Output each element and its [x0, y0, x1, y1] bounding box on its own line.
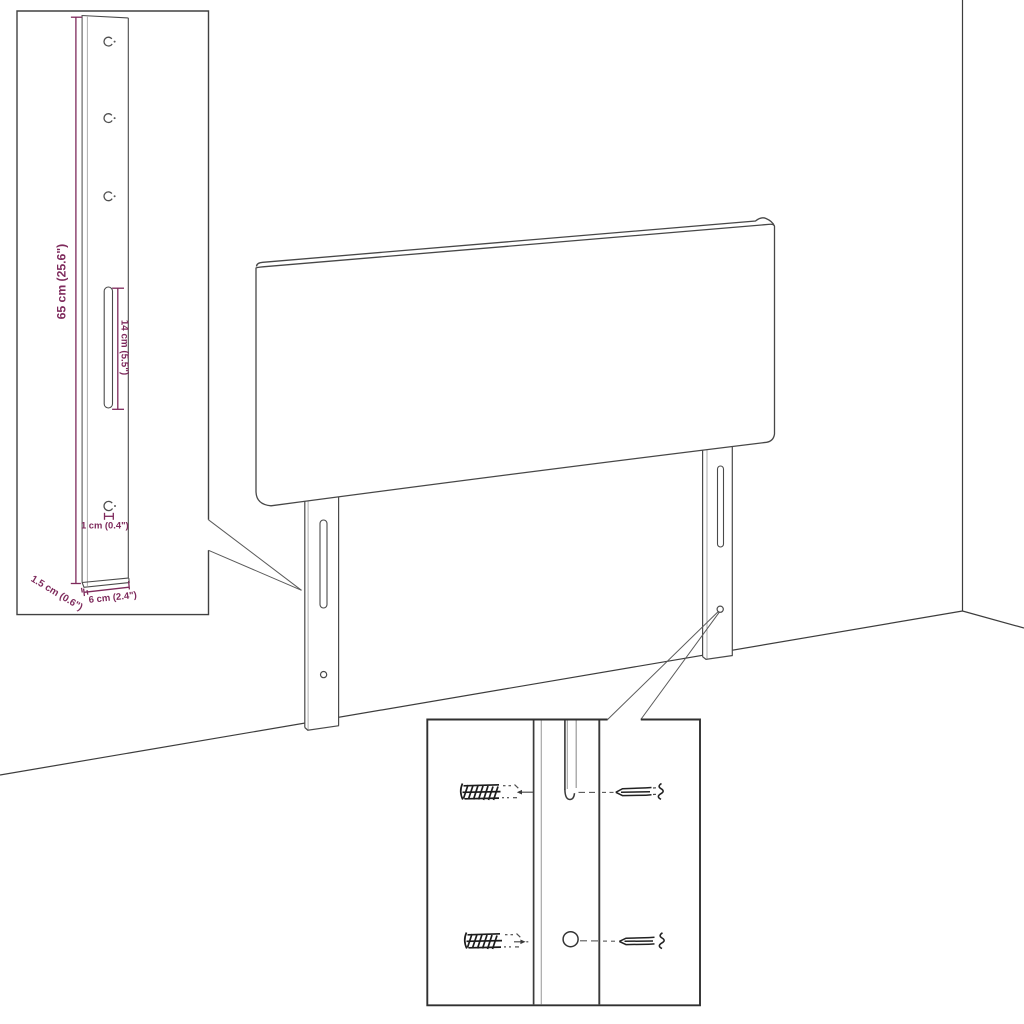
svg-text:1 cm (0.4"): 1 cm (0.4") [81, 520, 129, 531]
svg-text:65 cm (25.6"): 65 cm (25.6") [55, 244, 69, 320]
svg-text:14 cm (5.5"): 14 cm (5.5") [119, 320, 130, 375]
